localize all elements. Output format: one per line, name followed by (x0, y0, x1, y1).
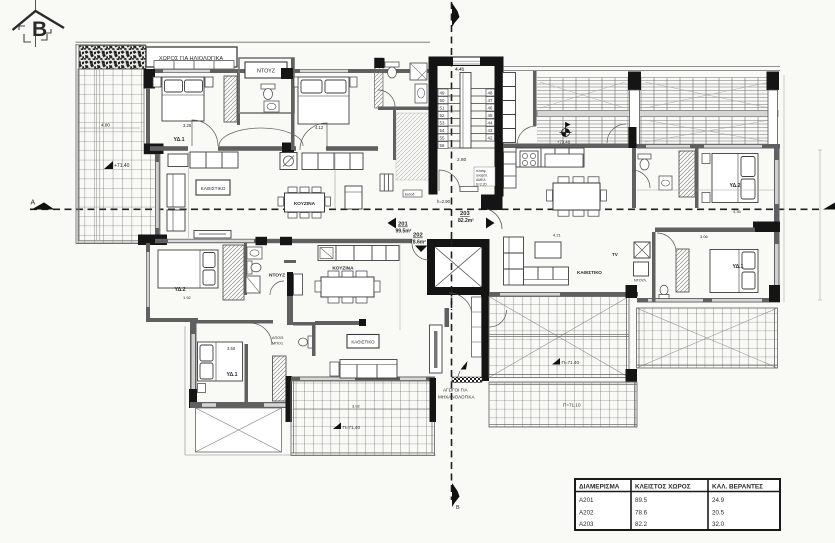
svg-text:20.5: 20.5 (712, 510, 725, 517)
svg-text:ΜΗΧΑΝΟΛΟΓΙΚΑ: ΜΗΧΑΝΟΛΟΓΙΚΑ (438, 395, 475, 400)
svg-text:24.9: 24.9 (712, 497, 725, 504)
svg-text:99.5m²: 99.5m² (396, 229, 412, 235)
svg-text:ΥΔ.2: ΥΔ.2 (174, 287, 185, 293)
svg-text:78.6: 78.6 (635, 510, 648, 517)
svg-text:49: 49 (440, 91, 445, 96)
svg-text:203: 203 (460, 211, 470, 217)
svg-text:h=2.20: h=2.20 (476, 183, 487, 187)
svg-text:Π=71.40: Π=71.40 (343, 425, 361, 430)
svg-text:44: 44 (488, 121, 493, 126)
svg-text:ΑΠΟΘ.: ΑΠΟΘ. (272, 336, 284, 340)
svg-text:ΚΑΘΙΣΤΙΚΟ: ΚΑΘΙΣΤΙΚΟ (351, 340, 375, 345)
svg-text:4.12: 4.12 (315, 125, 324, 130)
svg-text:1.92: 1.92 (183, 295, 192, 300)
svg-text:h=2.90: h=2.90 (437, 199, 451, 204)
svg-text:ΜΠΟΞ: ΜΠΟΞ (272, 342, 284, 346)
svg-text:42: 42 (488, 136, 493, 141)
svg-text:4.80: 4.80 (101, 123, 110, 128)
svg-text:TV: TV (612, 252, 619, 257)
svg-text:πλατφ.: πλατφ. (476, 169, 486, 173)
svg-text:32.0: 32.0 (712, 521, 725, 528)
svg-text:48: 48 (488, 91, 493, 96)
svg-text:51: 51 (440, 106, 445, 111)
svg-text:89.5: 89.5 (635, 497, 648, 504)
svg-text:ΑΜΕΑ: ΑΜΕΑ (476, 178, 486, 182)
svg-text:47: 47 (488, 98, 493, 103)
svg-text:ΔΙΑΜΕΡΙΣΜΑ: ΔΙΑΜΕΡΙΣΜΑ (579, 484, 620, 491)
svg-text:ΝΤΟΥΖ: ΝΤΟΥΖ (257, 69, 276, 75)
svg-text:ΑΓΩΓΟΙ ΓΙΑ: ΑΓΩΓΟΙ ΓΙΑ (443, 388, 468, 393)
svg-text:Π=71.40: Π=71.40 (562, 360, 580, 365)
svg-text:3.06: 3.06 (700, 234, 709, 239)
svg-text:2.80: 2.80 (457, 157, 467, 163)
svg-text:Π=71.10: Π=71.10 (563, 403, 581, 408)
svg-text:+71.40: +71.40 (114, 163, 130, 169)
svg-text:4.35: 4.35 (733, 209, 742, 214)
svg-text:A: A (31, 200, 36, 207)
svg-text:ΚΛΕΙΣΤΟΣ ΧΩΡΟΣ: ΚΛΕΙΣΤΟΣ ΧΩΡΟΣ (635, 484, 691, 491)
svg-text:A202: A202 (579, 510, 594, 517)
svg-text:ΚΑΘΙΣΤΙΚΟ: ΚΑΘΙΣΤΙΚΟ (577, 270, 602, 275)
svg-text:ΝΤΟΥΛ.: ΝΤΟΥΛ. (634, 279, 647, 283)
svg-text:53: 53 (440, 121, 445, 126)
svg-text:Εισοδ: Εισοδ (405, 193, 414, 197)
svg-text:4.21: 4.21 (553, 233, 562, 238)
svg-text:82.2m²: 82.2m² (458, 218, 474, 224)
svg-text:ΚΟΥΖΙΝΑ: ΚΟΥΖΙΝΑ (332, 266, 354, 272)
svg-text:54: 54 (440, 128, 445, 133)
svg-text:ΥΔ.1: ΥΔ.1 (732, 264, 743, 270)
svg-text:46: 46 (488, 106, 493, 111)
svg-text:45: 45 (488, 113, 493, 118)
svg-text:50: 50 (440, 98, 445, 103)
svg-text:3.25: 3.25 (183, 123, 192, 128)
svg-text:82.2: 82.2 (635, 521, 648, 528)
svg-text:55: 55 (440, 136, 445, 141)
svg-text:ΥΔ.1: ΥΔ.1 (226, 372, 237, 378)
svg-text:ΚΑΘΙΣΤΙΚΟ: ΚΑΘΙΣΤΙΚΟ (201, 186, 226, 191)
svg-text:ΥΔ.1: ΥΔ.1 (173, 137, 184, 143)
svg-text:B: B (456, 505, 460, 511)
svg-text:αναβατ.: αναβατ. (476, 174, 488, 178)
svg-text:201: 201 (398, 222, 408, 228)
svg-text:43: 43 (488, 128, 493, 133)
svg-text:3.92: 3.92 (352, 404, 361, 409)
svg-text:ΚΟΥΖΙΝΑ: ΚΟΥΖΙΝΑ (294, 201, 316, 207)
svg-text:ΚΑΛ. ΒΕΡΑΝΤΕΣ: ΚΑΛ. ΒΕΡΑΝΤΕΣ (712, 484, 763, 491)
svg-text:3.50: 3.50 (227, 346, 236, 351)
svg-text:B: B (32, 18, 47, 41)
svg-text:A203: A203 (579, 521, 594, 528)
svg-text:78.6m²: 78.6m² (410, 240, 426, 246)
svg-text:202: 202 (413, 233, 423, 239)
svg-text:A201: A201 (579, 497, 594, 504)
svg-text:4.41: 4.41 (455, 67, 465, 73)
svg-text:52: 52 (440, 113, 445, 118)
svg-text:ΝΤΟΥΖ: ΝΤΟΥΖ (269, 273, 285, 279)
svg-text:ΥΔ.2: ΥΔ.2 (729, 183, 740, 189)
svg-text:56: 56 (440, 143, 445, 148)
